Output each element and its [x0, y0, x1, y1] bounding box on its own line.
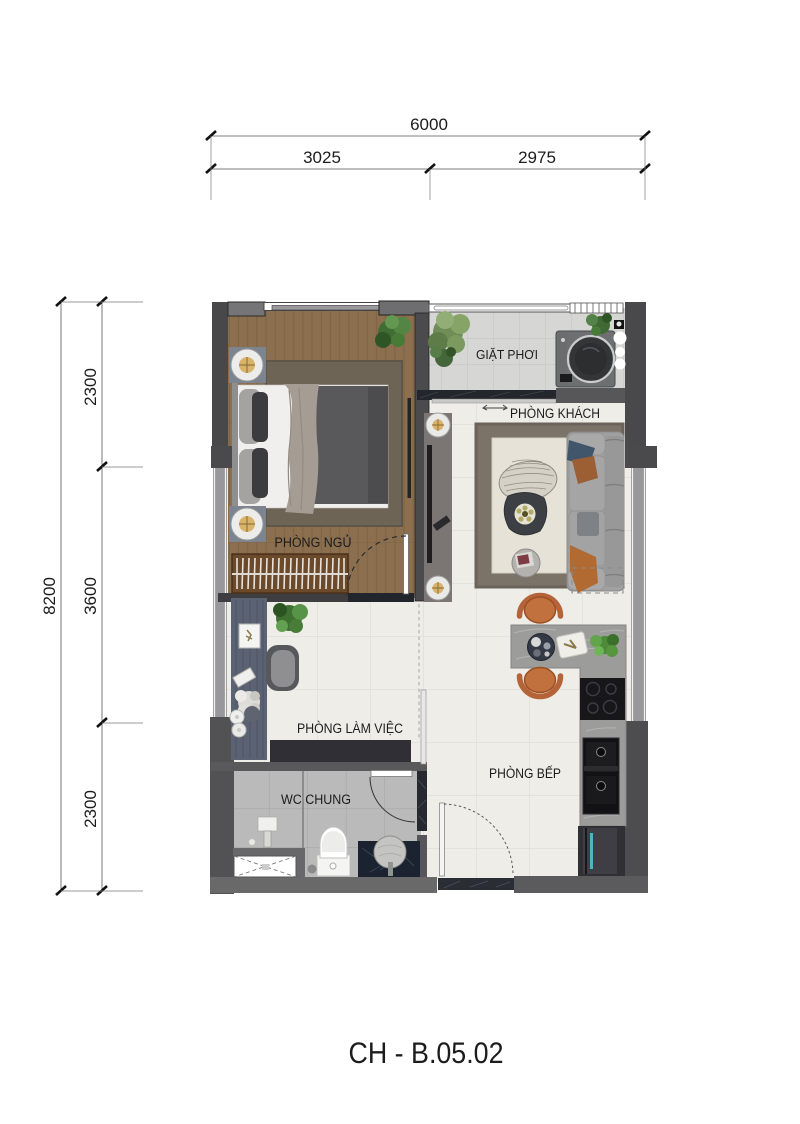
svg-text:CH - B.05.02: CH - B.05.02 [349, 1037, 504, 1070]
svg-text:PHÒNG LÀM VIỆC: PHÒNG LÀM VIỆC [297, 721, 403, 736]
svg-text:6000: 6000 [410, 115, 448, 134]
svg-text:2975: 2975 [518, 148, 556, 167]
svg-text:PHÒNG NGỦ: PHÒNG NGỦ [275, 535, 352, 550]
svg-text:PHÒNG BẾP: PHÒNG BẾP [489, 766, 561, 781]
svg-text:3025: 3025 [303, 148, 341, 167]
svg-text:GIẶT PHƠI: GIẶT PHƠI [476, 347, 538, 362]
svg-text:WC CHUNG: WC CHUNG [281, 792, 351, 807]
svg-text:PHÒNG KHÁCH: PHÒNG KHÁCH [510, 406, 600, 421]
svg-text:3600: 3600 [81, 577, 100, 615]
svg-text:2300: 2300 [81, 368, 100, 406]
svg-text:8200: 8200 [40, 577, 59, 615]
svg-text:2300: 2300 [81, 790, 100, 828]
